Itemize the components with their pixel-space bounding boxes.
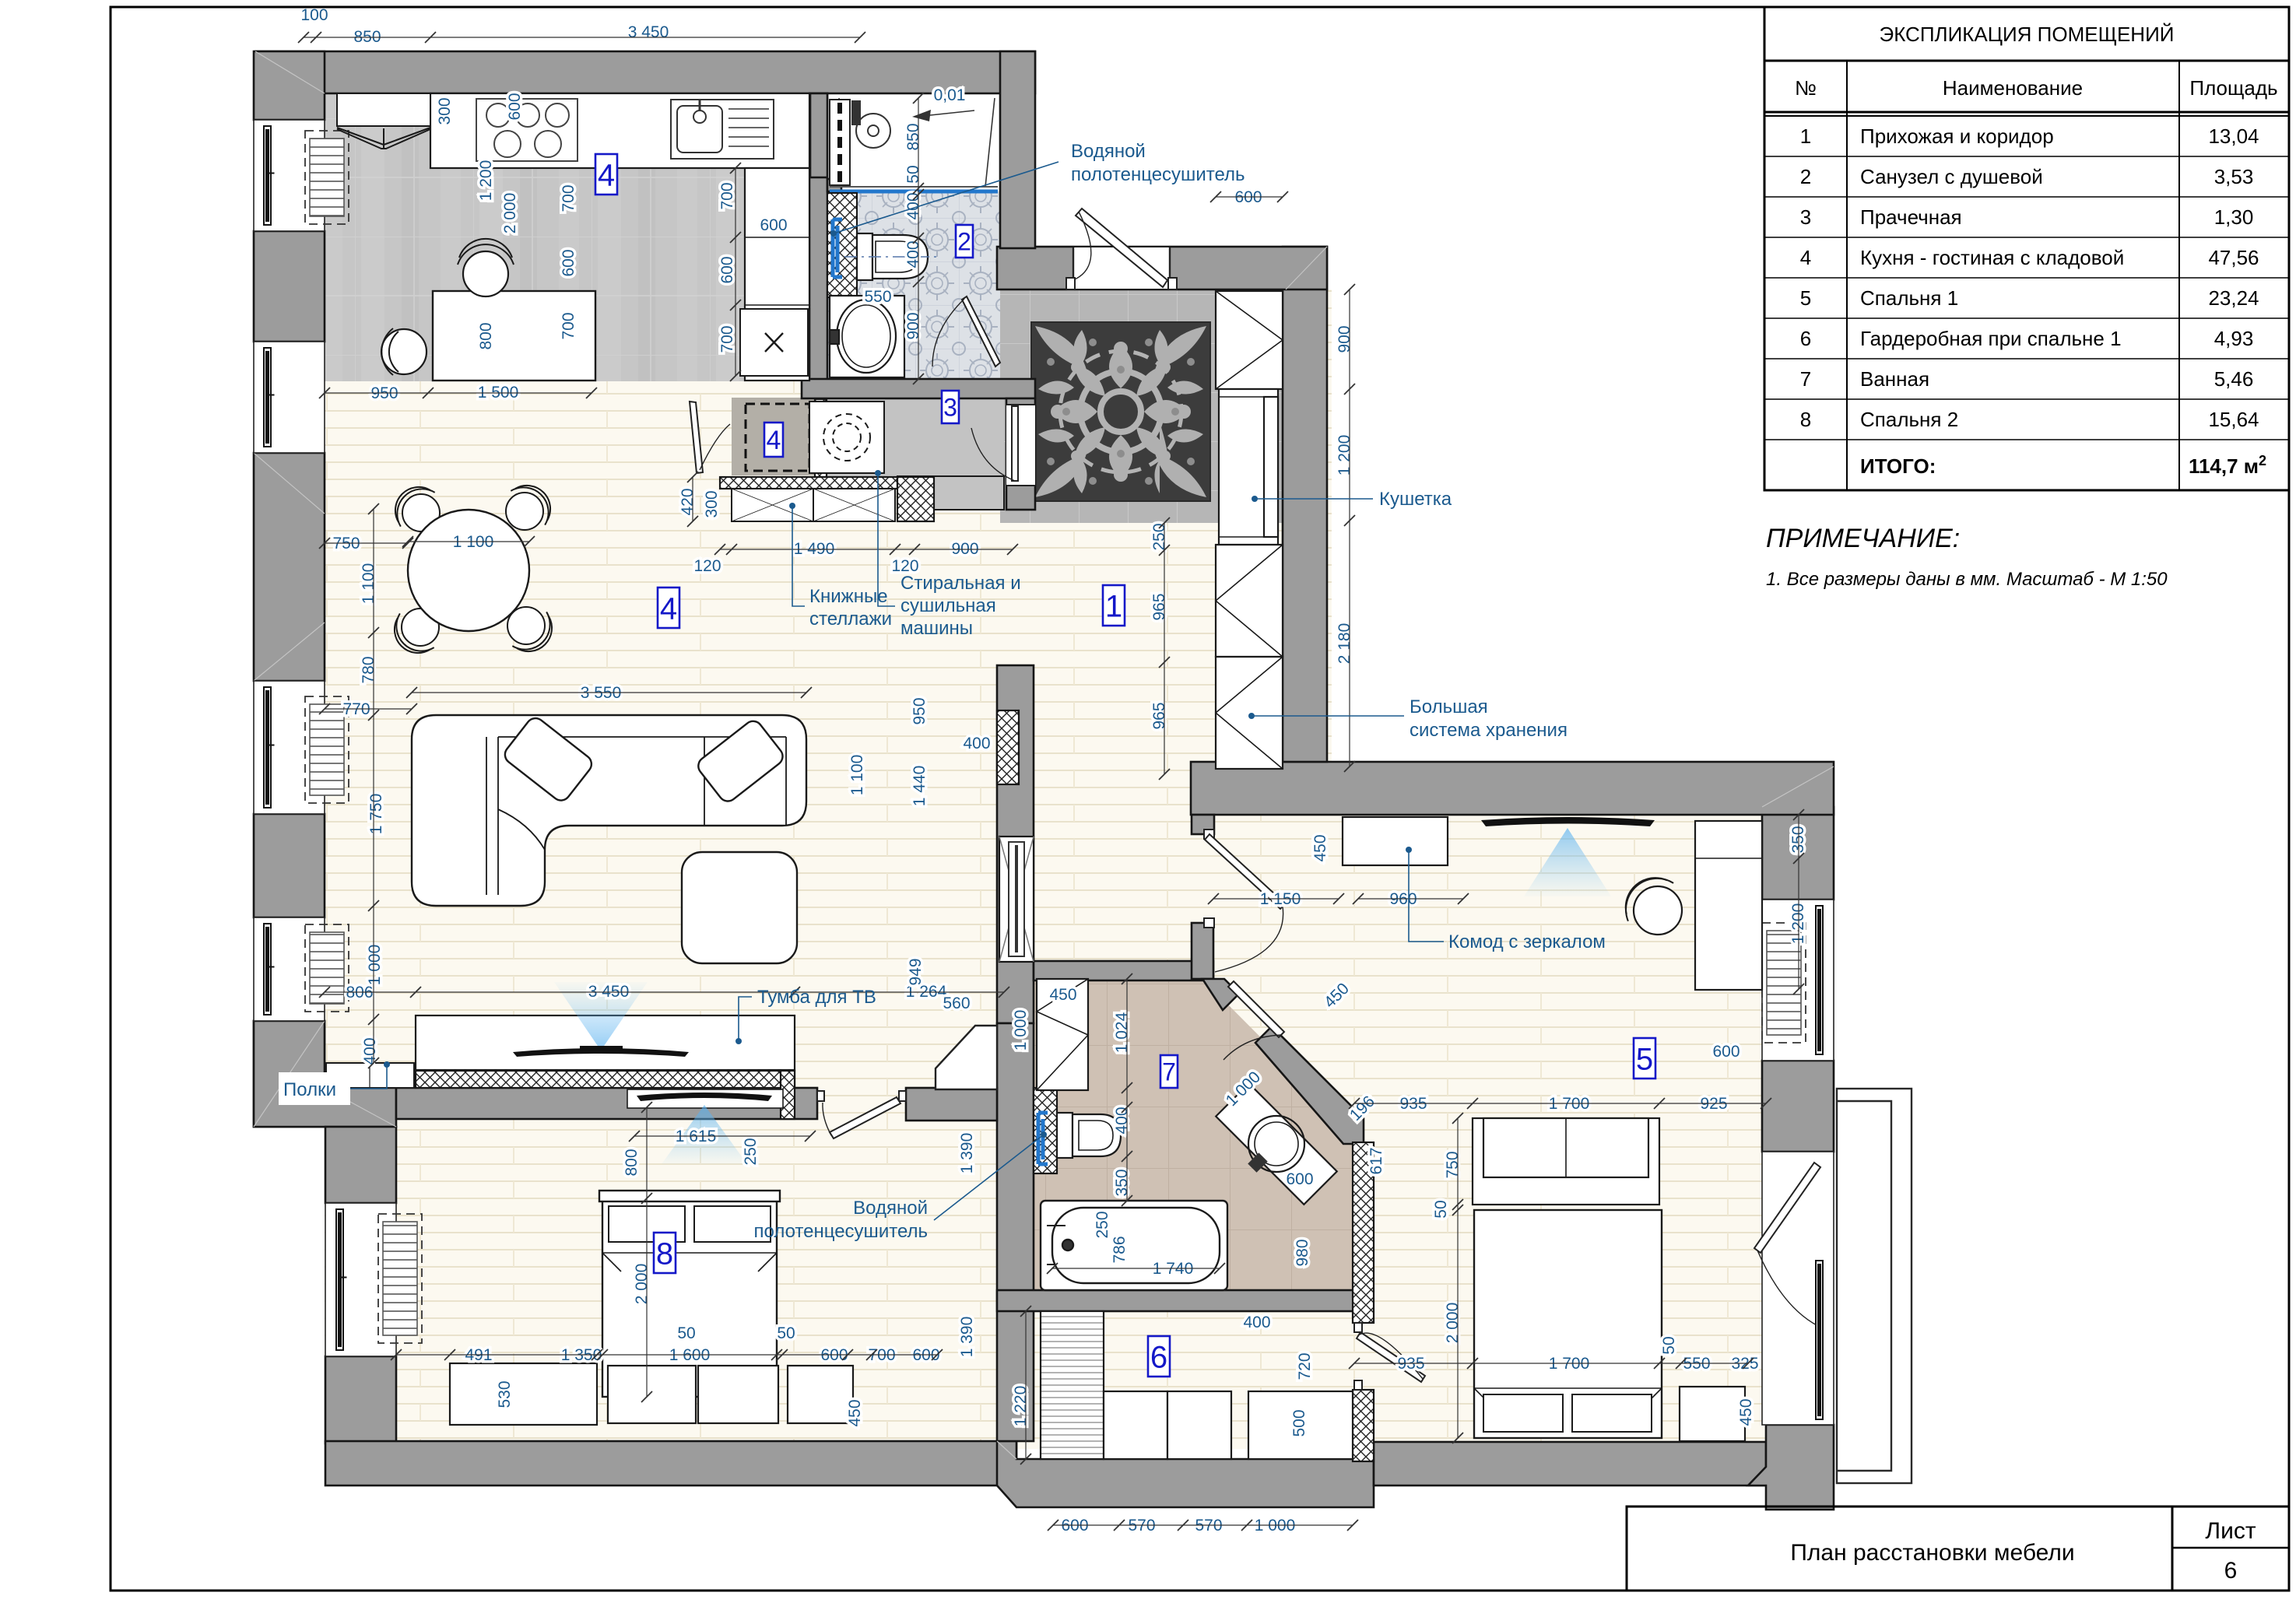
svg-text:6: 6: [1150, 1340, 1167, 1374]
svg-text:3,53: 3,53: [2214, 165, 2254, 188]
svg-text:2 000: 2 000: [501, 193, 519, 234]
svg-text:530: 530: [496, 1380, 514, 1408]
svg-text:2: 2: [1800, 165, 1811, 188]
svg-text:4: 4: [598, 158, 615, 192]
svg-text:7: 7: [1162, 1058, 1176, 1086]
svg-text:1: 1: [1105, 589, 1122, 623]
svg-text:Прачечная: Прачечная: [1860, 205, 1962, 229]
svg-text:Лист: Лист: [2205, 1518, 2256, 1544]
svg-text:50: 50: [1432, 1200, 1450, 1218]
svg-text:1 100: 1 100: [848, 755, 866, 796]
svg-text:0,01: 0,01: [934, 86, 966, 104]
svg-text:2 000: 2 000: [633, 1264, 651, 1305]
svg-text:700: 700: [560, 184, 578, 212]
svg-text:600: 600: [560, 249, 578, 276]
svg-text:600: 600: [506, 93, 524, 120]
svg-text:400: 400: [1113, 1107, 1131, 1134]
svg-text:250: 250: [742, 1138, 760, 1165]
svg-text:47,56: 47,56: [2208, 246, 2259, 269]
svg-text:Кушетка: Кушетка: [1379, 489, 1452, 510]
svg-text:1 390: 1 390: [958, 1317, 976, 1358]
svg-text:50: 50: [677, 1324, 695, 1342]
svg-text:1. Все размеры даны в мм. Масш: 1. Все размеры даны в мм. Масштаб - М 1:…: [1766, 569, 2168, 590]
svg-text:№: №: [1795, 76, 1817, 100]
svg-text:350: 350: [1113, 1169, 1131, 1196]
svg-text:4: 4: [1800, 246, 1811, 269]
svg-text:сушильная: сушильная: [900, 595, 996, 616]
svg-text:полотенцесушитель: полотенцесушитель: [1071, 164, 1245, 185]
svg-text:400: 400: [1243, 1314, 1270, 1331]
svg-text:720: 720: [1296, 1352, 1314, 1380]
svg-text:Спальня 2: Спальня 2: [1860, 408, 1958, 431]
svg-text:300: 300: [436, 97, 454, 125]
svg-text:1 390: 1 390: [958, 1133, 976, 1174]
svg-text:786: 786: [1111, 1236, 1129, 1263]
svg-text:600: 600: [760, 216, 787, 234]
svg-text:4: 4: [660, 591, 677, 626]
svg-text:100: 100: [300, 6, 328, 24]
svg-text:4,93: 4,93: [2214, 327, 2254, 350]
svg-text:560: 560: [943, 994, 970, 1012]
svg-text:Ванная: Ванная: [1860, 367, 1929, 391]
svg-text:50: 50: [777, 1324, 795, 1342]
svg-text:Тумба для ТВ: Тумба для ТВ: [757, 987, 876, 1008]
svg-text:полотенцесушитель: полотенцесушитель: [754, 1221, 929, 1242]
svg-text:1,30: 1,30: [2214, 205, 2254, 229]
svg-text:250: 250: [1094, 1211, 1111, 1238]
svg-text:2: 2: [957, 228, 971, 256]
svg-text:1 000: 1 000: [1012, 1010, 1030, 1051]
svg-text:600: 600: [1286, 1170, 1313, 1188]
svg-text:6: 6: [1800, 327, 1811, 350]
svg-text:800: 800: [477, 322, 495, 349]
svg-text:Прихожая и коридор: Прихожая и коридор: [1860, 125, 2054, 148]
svg-text:5,46: 5,46: [2214, 367, 2254, 391]
svg-text:50: 50: [904, 165, 922, 183]
svg-text:400: 400: [904, 240, 922, 268]
svg-text:Водяной: Водяной: [853, 1198, 928, 1219]
svg-text:965: 965: [1150, 702, 1168, 729]
svg-text:950: 950: [911, 697, 929, 724]
svg-text:Спальня 1: Спальня 1: [1860, 286, 1958, 310]
svg-text:300: 300: [703, 490, 721, 517]
svg-text:система хранения: система хранения: [1410, 720, 1568, 741]
svg-text:700: 700: [718, 325, 736, 353]
svg-text:23,24: 23,24: [2208, 286, 2259, 310]
svg-text:400: 400: [963, 735, 990, 752]
svg-text:1 100: 1 100: [360, 563, 377, 605]
svg-text:450: 450: [1737, 1398, 1755, 1426]
svg-text:450: 450: [1311, 834, 1329, 861]
svg-text:949: 949: [907, 958, 925, 985]
svg-text:850: 850: [904, 123, 922, 150]
svg-text:Санузел с душевой: Санузел с душевой: [1860, 165, 2043, 188]
svg-text:2 180: 2 180: [1336, 623, 1353, 665]
svg-text:Большая: Большая: [1410, 696, 1488, 717]
svg-text:Гардеробная при спальне 1: Гардеробная при спальне 1: [1860, 327, 2122, 350]
svg-text:2 000: 2 000: [1444, 1303, 1462, 1344]
svg-text:600: 600: [1712, 1043, 1740, 1061]
svg-text:1 750: 1 750: [367, 794, 385, 835]
svg-text:120: 120: [693, 557, 721, 575]
svg-text:1 220: 1 220: [1012, 1386, 1030, 1427]
svg-text:ЭКСПЛИКАЦИЯ ПОМЕЩЕНИЙ: ЭКСПЛИКАЦИЯ ПОМЕЩЕНИЙ: [1880, 23, 2175, 46]
svg-text:8: 8: [656, 1236, 673, 1271]
svg-text:7: 7: [1800, 367, 1811, 391]
svg-text:13,04: 13,04: [2208, 125, 2259, 148]
svg-text:Площадь: Площадь: [2189, 76, 2277, 100]
svg-text:550: 550: [864, 288, 891, 306]
svg-text:5: 5: [1800, 286, 1811, 310]
svg-text:Книжные: Книжные: [809, 586, 888, 607]
svg-text:15,64: 15,64: [2208, 408, 2259, 431]
svg-text:1 200: 1 200: [1336, 435, 1353, 476]
svg-text:450: 450: [846, 1399, 864, 1426]
svg-text:1 000: 1 000: [366, 945, 384, 986]
svg-text:Комод с зеркалом: Комод с зеркалом: [1448, 931, 1606, 952]
svg-text:1: 1: [1800, 125, 1811, 148]
svg-text:450: 450: [1049, 986, 1076, 1004]
svg-text:600: 600: [718, 256, 736, 283]
svg-text:800: 800: [623, 1149, 641, 1176]
svg-text:420: 420: [679, 488, 697, 515]
svg-text:500: 500: [1290, 1409, 1308, 1436]
svg-text:План расстановки мебели: План расстановки мебели: [1790, 1540, 2074, 1566]
svg-text:900: 900: [1336, 325, 1353, 353]
svg-text:780: 780: [360, 656, 377, 683]
svg-text:4: 4: [767, 426, 781, 455]
svg-text:750: 750: [1444, 1151, 1462, 1178]
svg-text:3: 3: [1800, 205, 1811, 229]
svg-text:980: 980: [1294, 1239, 1311, 1266]
svg-text:700: 700: [718, 182, 736, 209]
svg-text:3 450: 3 450: [628, 23, 669, 41]
svg-text:1 440: 1 440: [911, 766, 929, 807]
svg-text:ИТОГО:: ИТОГО:: [1860, 454, 1936, 478]
svg-text:машины: машины: [900, 618, 973, 639]
svg-text:5: 5: [1636, 1042, 1653, 1076]
svg-text:Кухня - гостиная с кладовой: Кухня - гостиная с кладовой: [1860, 246, 2124, 269]
svg-text:ПРИМЕЧАНИЕ:: ПРИМЕЧАНИЕ:: [1766, 524, 1960, 553]
svg-text:Стиральная и: Стиральная и: [900, 573, 1021, 594]
svg-text:617: 617: [1367, 1147, 1385, 1174]
svg-text:114,7 м2: 114,7 м2: [2189, 453, 2266, 478]
svg-text:900: 900: [904, 312, 922, 339]
svg-text:50: 50: [1660, 1336, 1678, 1354]
svg-text:Полки: Полки: [283, 1079, 336, 1100]
svg-text:Водяной: Водяной: [1071, 141, 1146, 162]
svg-text:1 200: 1 200: [477, 160, 495, 202]
svg-text:Наименование: Наименование: [1943, 76, 2083, 100]
svg-text:700: 700: [560, 312, 578, 339]
svg-text:стеллажи: стеллажи: [809, 609, 892, 630]
svg-text:8: 8: [1800, 408, 1811, 431]
svg-text:965: 965: [1150, 593, 1168, 620]
svg-text:6: 6: [2224, 1558, 2238, 1584]
svg-text:1 024: 1 024: [1113, 1012, 1131, 1053]
svg-text:3: 3: [943, 394, 957, 422]
